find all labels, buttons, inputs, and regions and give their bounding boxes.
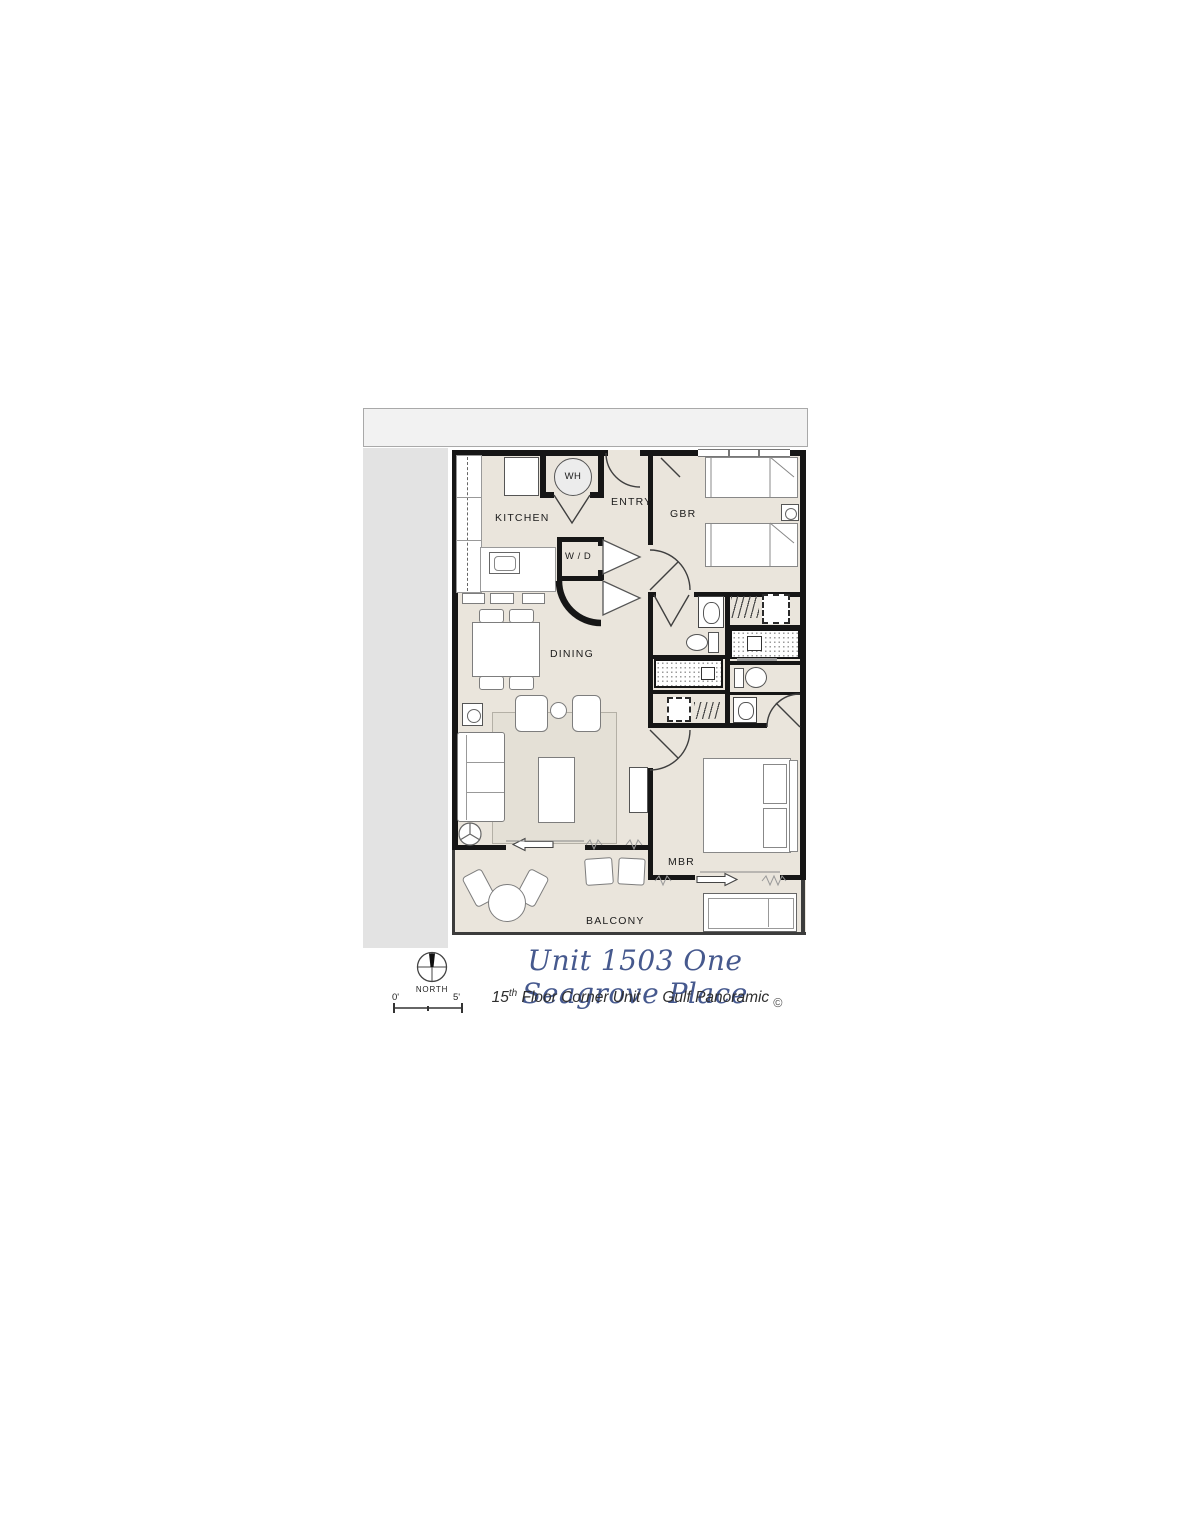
mbr-label: MBR: [668, 857, 695, 868]
plan-subtitle: 15th Floor Corner UnitGulf Panoramic©: [455, 988, 815, 1007]
gbr-label: GBR: [670, 509, 696, 520]
wd-door-leaf: [603, 581, 640, 615]
floor-lamp: [459, 823, 481, 845]
entry-label: ENTRY: [611, 497, 652, 508]
plan-detail-overlay: [363, 400, 820, 1020]
subtitle-floor-num: 15: [492, 989, 509, 1006]
wd-door-leaf: [603, 540, 640, 574]
entry-door-arc: [606, 453, 640, 487]
bed-fold-line: [770, 457, 794, 543]
screen-zigzag: [655, 876, 671, 885]
compass: [412, 950, 452, 990]
subtitle-floor-sup: th: [509, 988, 517, 999]
floor-plan-sheet: WH: [0, 0, 1200, 1540]
balcony-label: BALCONY: [586, 916, 645, 927]
subtitle-view: Gulf Panoramic: [662, 989, 769, 1006]
slider-arrow-left: [513, 839, 553, 851]
gbr-door-leaf: [650, 562, 678, 590]
north-label: NORTH: [408, 986, 456, 994]
screen-zigzag: [762, 876, 786, 885]
subtitle-floor-rest: Floor Corner Unit: [517, 989, 640, 1006]
kitchen-label: KITCHEN: [495, 513, 550, 524]
wd-label: W / D: [565, 552, 591, 562]
mbr-door-leaf: [650, 730, 678, 758]
copyright-mark: ©: [773, 996, 782, 1010]
screen-zigzag: [586, 840, 602, 849]
wh-closet-door: [554, 495, 590, 523]
dining-label: DINING: [550, 649, 594, 660]
master-bath-door-leaf: [776, 703, 800, 727]
guest-bath-door-leaf: [654, 595, 689, 626]
gbr-window-leaf: [661, 458, 680, 477]
curved-wall: [559, 581, 601, 623]
screen-zigzag: [626, 840, 642, 849]
slider-arrow-right: [697, 874, 737, 886]
